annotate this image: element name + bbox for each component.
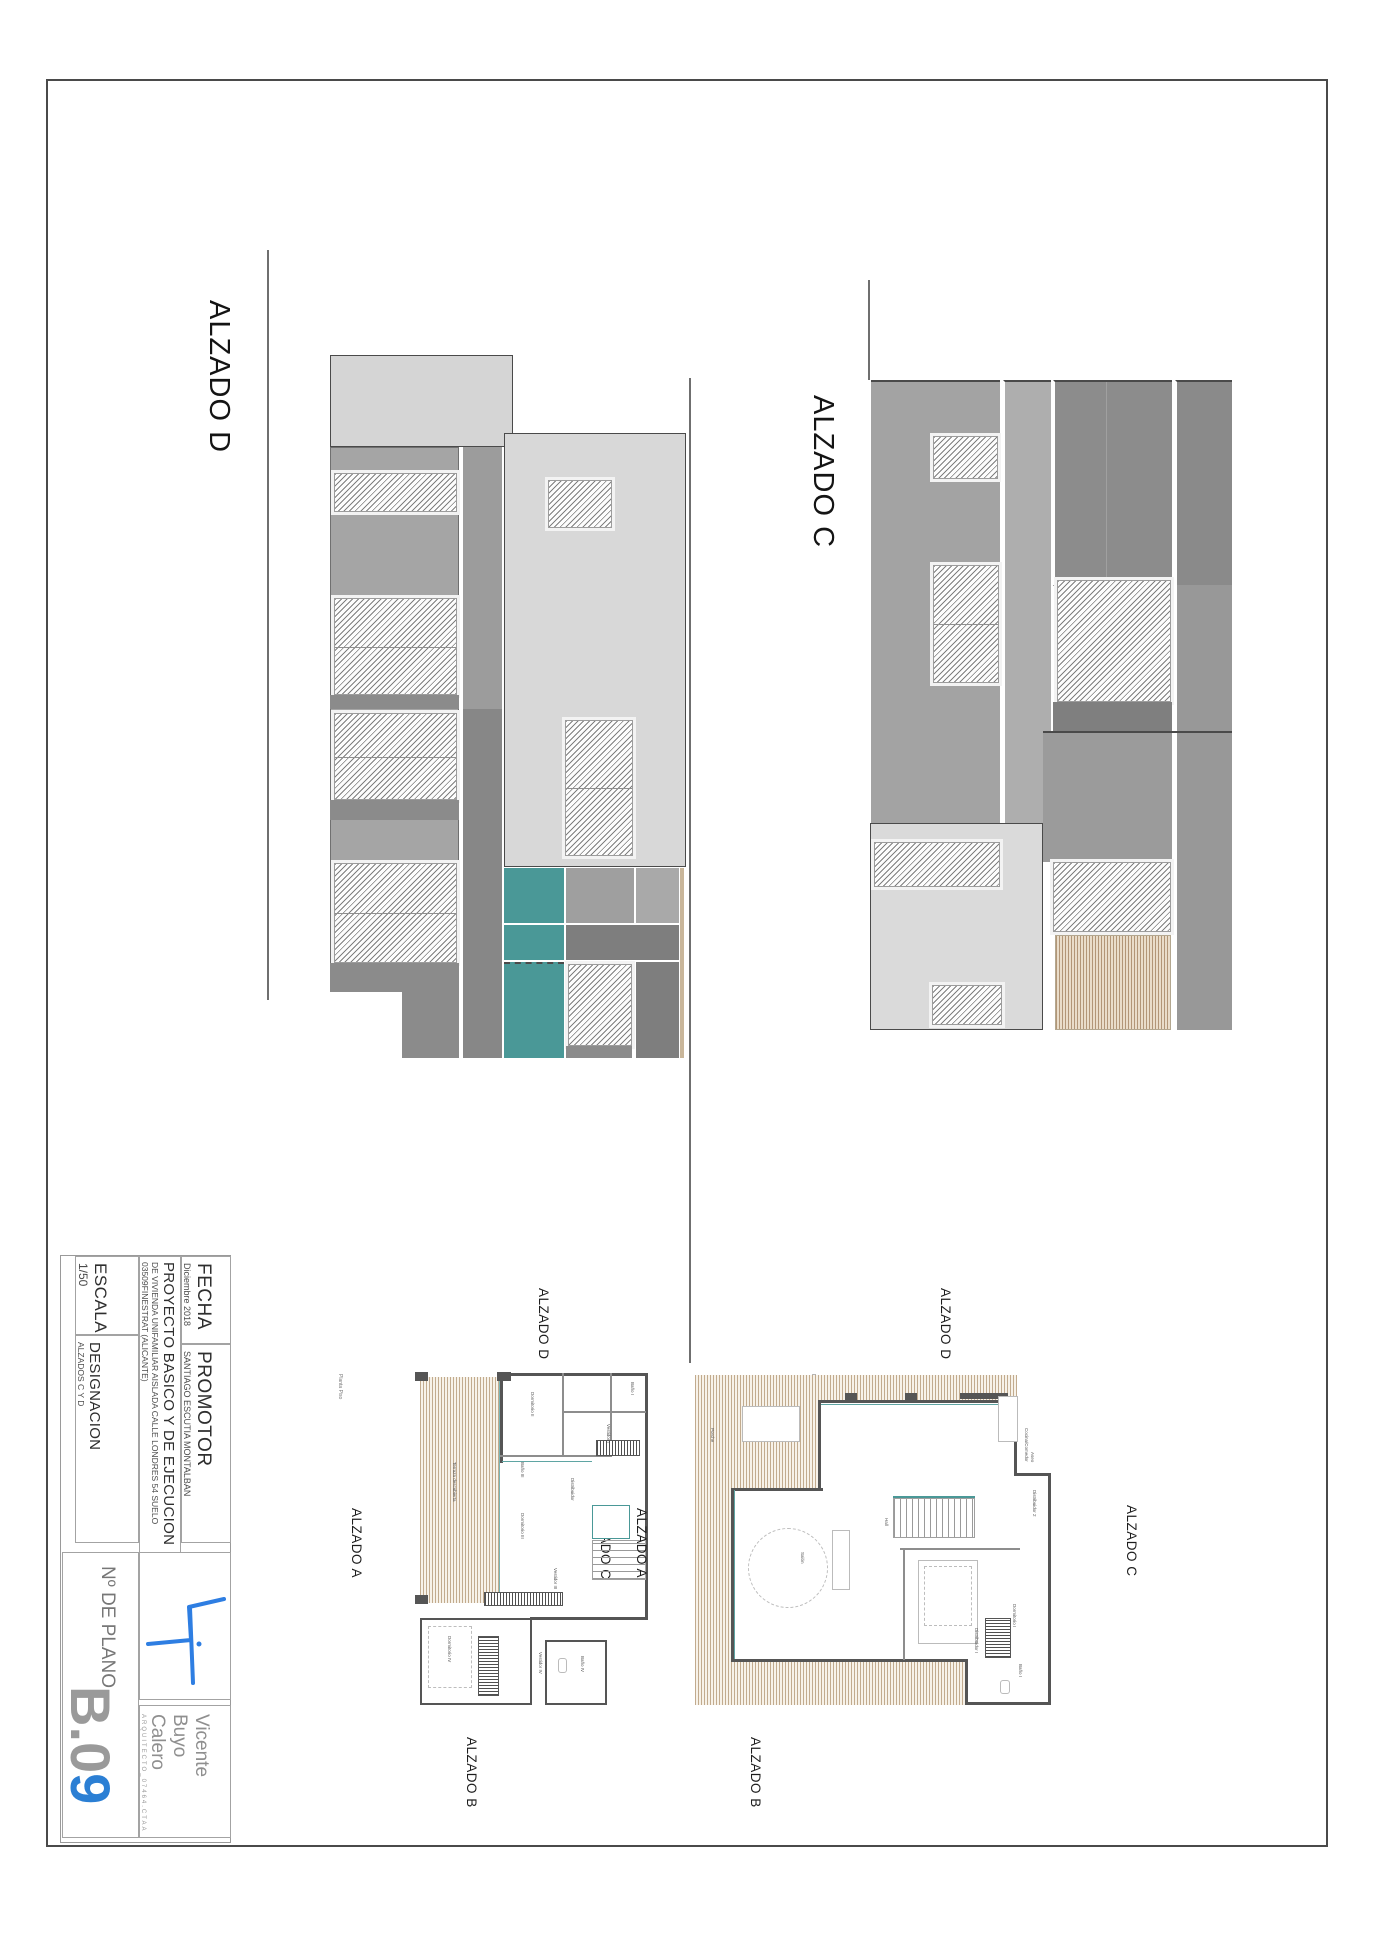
fecha-value: Diciembre 2018 [182, 1263, 192, 1343]
plan1-toilet [558, 1658, 567, 1673]
elevation-c-right-column [1175, 585, 1232, 1030]
plan1-wall-stub [415, 1372, 428, 1381]
window-divider [335, 913, 456, 914]
elevation-c-ground-line [689, 378, 691, 1363]
window-divider [335, 757, 456, 758]
elevation-c-window [933, 565, 999, 683]
plano-number-suffix: 9 [59, 1773, 122, 1804]
elevation-d-block [636, 962, 679, 1058]
plan2-room-label: Porche [710, 1428, 715, 1442]
plan1-label-top: ALZADO D [536, 1288, 551, 1360]
plano-label: Nº DE PLANO [96, 1566, 118, 1688]
architect-name-line: Calero [146, 1714, 168, 1837]
plan2-toilet [1000, 1680, 1010, 1694]
elevation-d-block [636, 868, 679, 923]
elevation-c-window [1057, 580, 1171, 702]
sheet-page: ALZADO D ALZADO C ALZADO D ALZADO A [0, 0, 1380, 1936]
elevation-d-window [334, 713, 457, 800]
elevation-d-block [566, 925, 679, 960]
elevation-c-wood-cladding [1055, 935, 1171, 1030]
elevation-d-ground-line [267, 250, 269, 1000]
window-divider [934, 624, 998, 625]
designacion-label: DESIGNACION [86, 1342, 103, 1542]
elevation-c-right-column [1175, 380, 1232, 585]
plan2-wall [731, 1488, 823, 1491]
titleblock-escala-cell: ESCALA 1/50 [75, 1256, 139, 1335]
plan2-porch-deck [731, 1662, 967, 1705]
plan2-rug-circle [748, 1528, 828, 1608]
plan2-room-label: Baño I [1018, 1664, 1023, 1677]
proyecto-line3: 03509FINESTRAT (ALICANTE) [140, 1262, 150, 1564]
architect-name-line: Buyo [168, 1714, 190, 1837]
titleblock-signature-cell [139, 1552, 231, 1700]
elevation-c-window [874, 842, 1000, 887]
plan2-label-bottom: ALZADO B [748, 1737, 763, 1808]
plan2-wall [820, 1400, 1017, 1403]
elevation-c-window [932, 985, 1002, 1025]
plan1-stair-core [592, 1505, 630, 1539]
promotor-value: SANTIAGO ESCUTIA MONTALBAN [182, 1351, 192, 1542]
plan2-wardrobe [985, 1618, 1011, 1658]
elevation-c-joint-line [1106, 382, 1107, 585]
proyecto-line2: DE VIVIENDA UNIFAMILIAR AISLADA CALLE LO… [150, 1262, 160, 1564]
plan2-bed-mattress [924, 1566, 972, 1626]
titleblock-fecha-cell: FECHA Diciembre 2018 [181, 1256, 231, 1344]
elevation-c-window [1053, 862, 1171, 932]
plan2-label-right: ALZADO C [1124, 1505, 1139, 1577]
plan2-wall [965, 1702, 1051, 1705]
titleblock-architect-cell: Vicente Buyo Calero ARQUITECTO_07464.CTA… [139, 1705, 231, 1838]
elevation-d-base [402, 992, 459, 1058]
plan1-room-label: Vestidor III [553, 1568, 558, 1589]
plan2-room-label: Distribuidor I [974, 1628, 979, 1653]
plan1-wall [500, 1373, 648, 1376]
plan1-wall [530, 1617, 648, 1620]
plan2-room-label: Cocina/Comedor [1024, 1428, 1029, 1462]
elevation-c-window [933, 436, 998, 479]
plan2-wall [731, 1659, 968, 1662]
elevation-c-field [1043, 733, 1172, 862]
titleblock-designacion-cell: DESIGNACION ALZADOS C Y D [75, 1335, 139, 1543]
titleblock-proyecto-cell: PROYECTO BASICO Y DE EJECUCION DE VIVIEN… [139, 1256, 181, 1565]
plan2-wall [1014, 1473, 1051, 1476]
plan1-room-label: Vestidor IV [538, 1652, 543, 1674]
plan2-wall [965, 1659, 968, 1705]
plan1-room-label: Terraza descubierta [452, 1462, 457, 1502]
elevation-d-teal-panel [504, 925, 564, 960]
plan2-dining-table [742, 1406, 800, 1442]
plan2-label-top: ALZADO D [938, 1288, 953, 1360]
plan1-label-bottom: ALZADO B [464, 1737, 479, 1808]
window-divider [335, 647, 456, 648]
elevation-d-window [548, 480, 612, 528]
fecha-label: FECHA [192, 1263, 214, 1343]
elevation-d-teal-panel [504, 868, 564, 923]
elevation-d-upper-volume [330, 355, 513, 447]
plan1-inner-wall [562, 1373, 564, 1457]
plan1-bathroom [545, 1640, 607, 1705]
plan1-label-left: ALZADO A [349, 1508, 364, 1578]
elevation-d-band [330, 800, 459, 820]
plan2-room-label: Aseo [1030, 1452, 1035, 1462]
elevation-d-band [330, 963, 459, 992]
elevation-d-pillar [461, 447, 502, 709]
elevation-d-window [334, 863, 457, 963]
plan1-wall-stub [415, 1595, 428, 1604]
plan1-room-label: Dormitorio II [530, 1392, 535, 1417]
plan1-wall [500, 1373, 503, 1463]
plan2-room-label: Dormitorio I [1012, 1604, 1017, 1627]
plan2-label-left: ALZADO A [634, 1508, 649, 1578]
titleblock-promotor-cell: PROMOTOR SANTIAGO ESCUTIA MONTALBAN [181, 1344, 231, 1543]
elevation-d-caption: ALZADO D [202, 300, 235, 453]
elevation-d-window [334, 598, 457, 695]
signature-sketch [140, 1553, 230, 1699]
promotor-label: PROMOTOR [192, 1351, 214, 1542]
elevation-d-window [334, 473, 457, 512]
elevation-c-band [1053, 702, 1172, 731]
elevation-d-teal-panel [504, 962, 564, 1058]
plan1-room-label: Baño III [520, 1462, 525, 1478]
plan1-room-label: Baño I [630, 1382, 635, 1395]
plan1-room-label: Dormitorio III [520, 1513, 525, 1539]
proyecto-title: PROYECTO BASICO Y DE EJECUCION [160, 1262, 177, 1564]
plano-number-prefix: B.0 [59, 1686, 122, 1773]
window-divider [566, 788, 632, 789]
elevation-d-band [566, 1046, 632, 1058]
plan1-room-label: Distribuidor [570, 1478, 575, 1501]
plan2-room-label: Hall [884, 1518, 889, 1526]
plan2-porch-deck [695, 1490, 731, 1705]
plan1-name: Planta Piso [337, 1374, 343, 1399]
plan2-room-label: Salón [800, 1552, 805, 1564]
plan1-wardrobe [596, 1440, 640, 1456]
designacion-value: ALZADOS C Y D [76, 1342, 86, 1542]
plan1-room-label: Baño IV [580, 1656, 585, 1672]
plan2-wall [818, 1400, 821, 1490]
plan1-wardrobe [484, 1592, 563, 1606]
plan2-room-label: Distribuidor 2 [1032, 1490, 1037, 1517]
plan1-inner-wall [563, 1411, 646, 1413]
elevation-d-window [565, 720, 633, 856]
plan1-wardrobe [478, 1636, 499, 1696]
architect-name-line: Vicente [190, 1714, 212, 1837]
plan2-inner-wall [903, 1548, 905, 1660]
elevation-d-block [566, 868, 634, 923]
elevation-d-window [568, 964, 632, 1046]
plan2-inner-wall [900, 1548, 1020, 1550]
plan2-sofa [832, 1530, 850, 1590]
elevation-c-caption: ALZADO C [806, 395, 839, 548]
plano-number: B.09 [58, 1686, 123, 1804]
plan2-kitchen-island [998, 1396, 1018, 1442]
plan2-teal-accent [734, 1490, 735, 1659]
plan1-teal-accent [502, 1461, 592, 1462]
elevation-d-pillar [461, 709, 502, 1058]
plan2-teal-accent [821, 1404, 1014, 1405]
elevation-d-band [330, 695, 459, 709]
plan2-stairs [893, 1498, 975, 1538]
plan2-wall [1048, 1473, 1051, 1705]
plan1-room-label: Vestidor I [606, 1424, 611, 1443]
elevation-c-boundary-line [868, 280, 870, 380]
plan1-room-label: Dormitorio IV [447, 1636, 452, 1662]
escala-label: ESCALA [90, 1263, 110, 1334]
plan1-terrace-deck [420, 1377, 500, 1603]
escala-value: 1/50 [76, 1263, 90, 1334]
elevation-d-wood-edge [680, 868, 684, 1058]
architect-credentials: ARQUITECTO_07464.CTAA [140, 1714, 146, 1837]
